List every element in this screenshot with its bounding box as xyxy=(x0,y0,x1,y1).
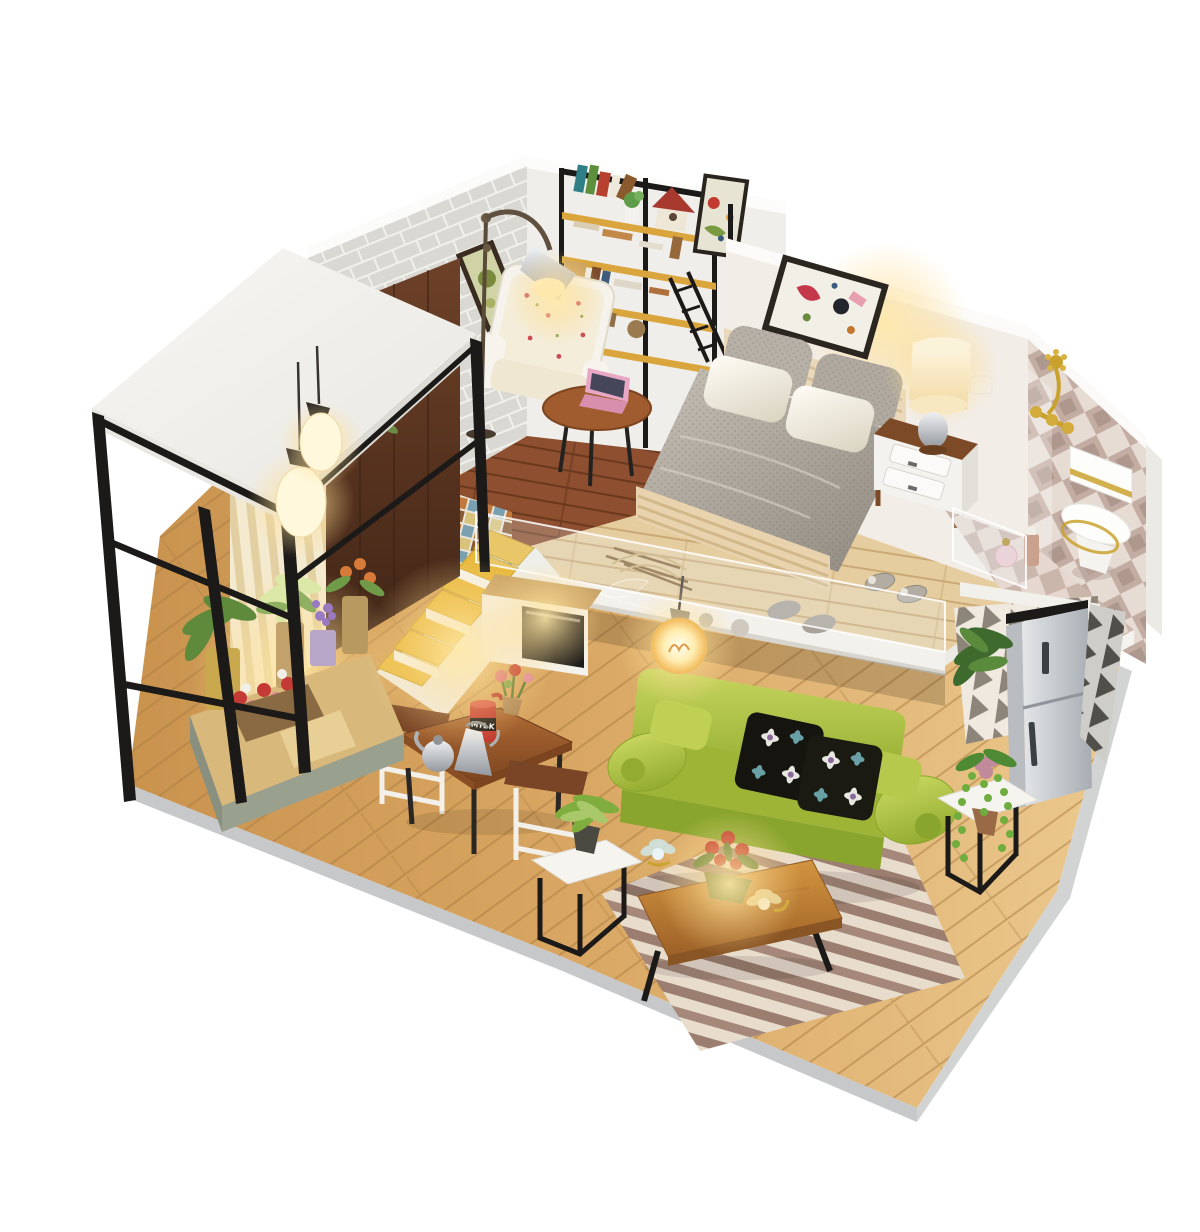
steel-post-left xyxy=(92,412,136,802)
sofa-floral-pillow-2 xyxy=(796,734,884,822)
fridge xyxy=(1006,600,1092,810)
dollhouse-product-photo: MILK xyxy=(40,16,1200,1216)
outer-wall-trim xyxy=(1146,444,1162,636)
floor-lamp-glow xyxy=(508,250,604,346)
dollhouse-illustration: MILK xyxy=(40,16,1200,1216)
